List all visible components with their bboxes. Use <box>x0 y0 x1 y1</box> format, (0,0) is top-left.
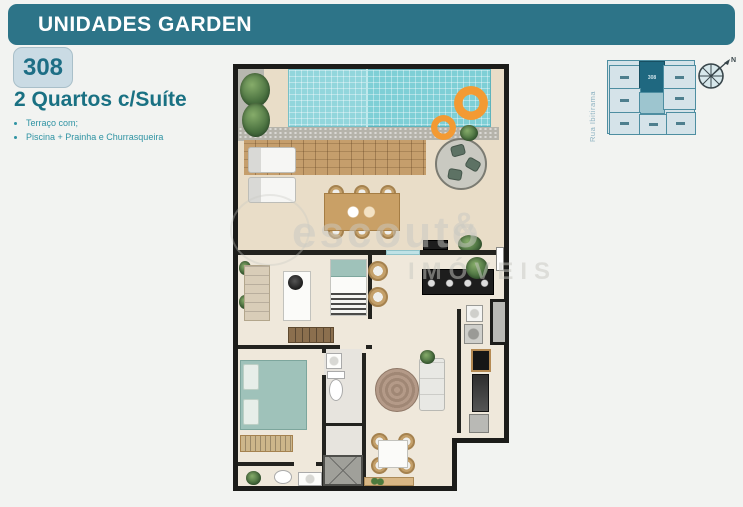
toilet-icon <box>327 371 345 379</box>
toilet-icon <box>329 379 343 401</box>
plant-icon <box>246 471 261 485</box>
dresser-icon <box>288 327 334 343</box>
armchair-icon <box>368 261 388 281</box>
street-label: Rua Ibitirama <box>588 91 597 142</box>
small-table-icon <box>378 440 408 468</box>
unit-label-mark <box>620 76 629 79</box>
shower-box-icon <box>323 455 363 486</box>
key-plan-highlight-label: 308 <box>648 75 656 81</box>
unit-type-title: 2 Quartos c/Suíte <box>14 88 187 112</box>
unit-number: 308 <box>23 54 63 81</box>
dining-table-icon <box>324 193 400 231</box>
oven-tower-icon <box>471 349 491 372</box>
unit-label-mark <box>676 122 685 125</box>
key-plan-unit <box>609 112 641 135</box>
sofa-icon <box>419 358 445 411</box>
floor-plan <box>233 64 509 491</box>
sun-lounger-icon <box>248 147 296 173</box>
bed-pillow <box>243 399 259 425</box>
compass-north-label: N <box>731 57 736 64</box>
key-plan-unit-highlighted: 308 <box>639 61 665 94</box>
round-rug-icon <box>375 368 419 412</box>
key-plan-unit <box>663 65 696 90</box>
washer-icon <box>464 324 483 344</box>
unit-label-mark <box>675 76 684 79</box>
barbecue-grill-icon <box>423 240 448 250</box>
unit-label-mark <box>675 97 684 100</box>
fridge-icon <box>472 374 489 412</box>
wall <box>238 462 294 466</box>
toilet-icon <box>274 470 292 484</box>
wall <box>316 462 323 466</box>
feature-item: Terraço com; <box>26 116 163 130</box>
plant-icon <box>420 350 435 364</box>
vanity-icon <box>326 353 342 369</box>
compass-icon: N <box>695 52 737 94</box>
desk-chair-icon <box>288 275 303 290</box>
page-title: UNIDADES GARDEN <box>38 13 252 36</box>
bed-pillow <box>331 260 366 277</box>
key-plan-unit <box>666 112 696 135</box>
key-plan-unit <box>639 114 668 135</box>
terrace-chair-icon <box>447 168 463 181</box>
page-title-banner: UNIDADES GARDEN <box>8 4 735 45</box>
pool-shallow-area <box>288 69 366 127</box>
armchair-icon <box>368 287 388 307</box>
key-plan: 308 <box>607 60 695 134</box>
bed-quilt <box>331 293 366 315</box>
wall <box>420 250 504 255</box>
plan-notch <box>452 438 509 491</box>
sun-lounger-icon <box>248 177 296 203</box>
vanity-icon <box>298 472 322 486</box>
pool-lane-divider <box>366 69 368 127</box>
wall <box>457 309 461 433</box>
pool-float-icon <box>454 86 488 120</box>
entrance-door-icon <box>496 247 504 271</box>
wardrobe-icon <box>244 265 270 321</box>
unit-number-badge: 308 <box>13 47 73 88</box>
pool-float-icon <box>431 115 456 140</box>
bed-pillow <box>243 364 259 390</box>
sliding-door-icon <box>386 250 420 255</box>
unit-label-mark <box>649 123 658 126</box>
sideboard-icon <box>364 477 414 486</box>
kitchen-cabinet-icon <box>469 414 489 433</box>
counter-bump-out <box>490 299 508 345</box>
key-plan-core <box>639 92 665 114</box>
plant-icon <box>460 125 478 141</box>
key-plan-unit <box>663 88 696 110</box>
wall <box>238 250 386 255</box>
palm-plant-icon <box>242 103 270 137</box>
single-bed-icon <box>330 259 367 316</box>
unit-label-mark <box>620 122 629 125</box>
wall <box>366 345 372 349</box>
feature-list: Terraço com; Piscina + Prainha e Churras… <box>14 116 163 144</box>
wall <box>324 423 362 426</box>
unit-label-mark <box>620 99 629 102</box>
kitchen-sink-icon <box>466 305 483 322</box>
palm-plant-icon <box>240 73 270 107</box>
key-plan-unit <box>609 65 641 90</box>
feature-item: Piscina + Prainha e Churrasqueira <box>26 130 163 144</box>
key-plan-unit <box>609 88 641 114</box>
bench-icon <box>240 435 293 452</box>
plant-icon <box>466 257 488 279</box>
